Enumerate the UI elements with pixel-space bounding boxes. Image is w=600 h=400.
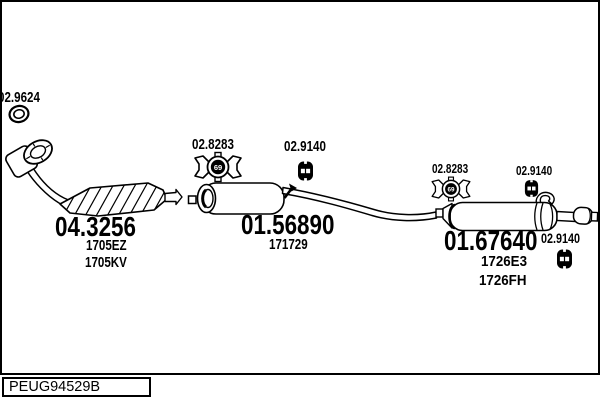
catalog-code: PEUG94529B <box>9 380 100 395</box>
label-clamp-front-number: 02.8283 <box>192 138 234 153</box>
label-hanger-tail-number: 02.9140 <box>541 232 580 246</box>
catalog-code-box: PEUG94529B <box>2 377 151 397</box>
label-catalyst-number: 04.3256 <box>55 213 136 241</box>
hanger-icon-tail <box>557 250 572 269</box>
label-mid-muffler-ref: 171729 <box>269 238 308 253</box>
clamp-front-size-label: 69 <box>214 163 222 172</box>
label-gasket-number: 02.9624 <box>0 91 40 106</box>
hanger-icon-mid <box>298 162 313 181</box>
label-catalyst-ref-2: 1705KV <box>85 256 127 271</box>
exhaust-system-drawing: 69 69 <box>0 0 600 400</box>
clamp-rear-size-label: 69 <box>447 186 455 193</box>
label-clamp-rear-number: 02.8283 <box>432 163 468 176</box>
label-rear-muffler-ref-2: 1726FH <box>479 274 526 289</box>
label-rear-muffler-ref-1: 1726E3 <box>481 255 527 270</box>
label-mid-muffler-number: 01.56890 <box>241 211 334 239</box>
gasket-icon <box>8 104 30 124</box>
label-rear-muffler-number: 01.67640 <box>444 227 537 255</box>
label-hanger-rear-number: 02.9140 <box>516 165 552 178</box>
label-catalyst-ref-1: 1705EZ <box>86 239 127 254</box>
label-hanger-mid-number: 02.9140 <box>284 140 326 155</box>
exhaust-diagram-page: 69 69 02.9624 04.3256 1705EZ 1705KV 02.8… <box>0 0 600 400</box>
hanger-icon-rear <box>525 180 538 197</box>
